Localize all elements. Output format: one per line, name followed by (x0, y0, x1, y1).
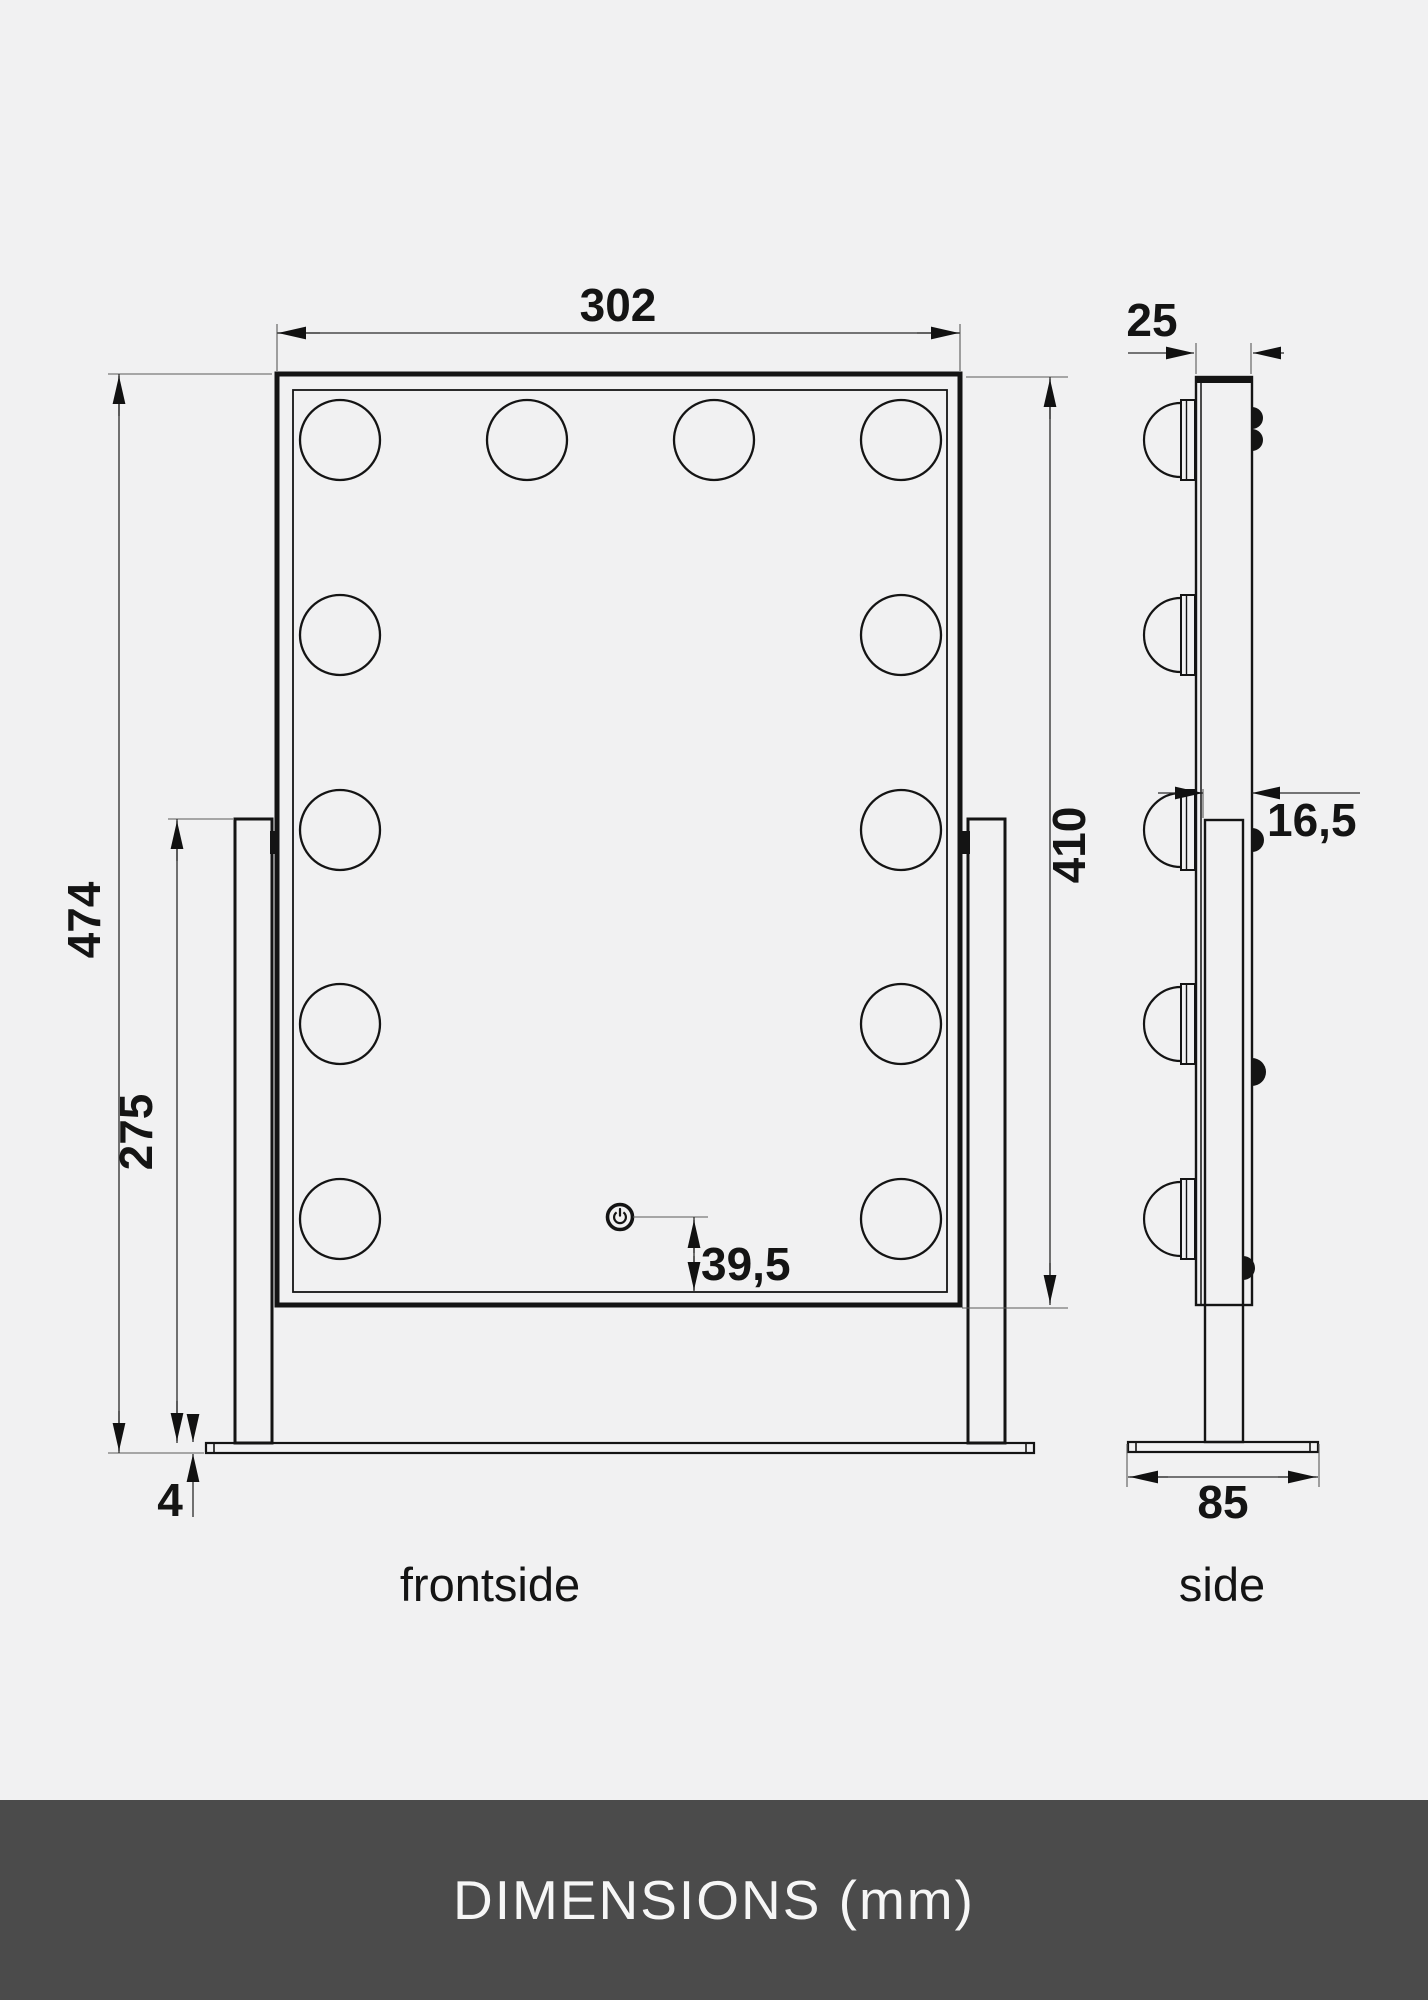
knob (1252, 828, 1264, 852)
dim-label-474: 474 (58, 881, 110, 958)
dimension-overall-height: 474 (58, 374, 272, 1453)
light-bulb (861, 1179, 941, 1259)
technical-drawing: 302 474 275 4 (0, 0, 1428, 1800)
dimension-diagram-page: 302 474 275 4 (0, 0, 1428, 2000)
light-bulb (300, 984, 380, 1064)
light-bulbs-front (300, 400, 941, 1259)
dim-label-275: 275 (110, 1094, 162, 1171)
dimension-button-offset: 39,5 (633, 1217, 791, 1292)
dimension-mirror-depth: 25 (1126, 294, 1284, 374)
banner-title: DIMENSIONS (mm) (453, 1868, 975, 1932)
stand-post-side (1205, 820, 1243, 1442)
dimension-mirror-height: 410 (962, 377, 1095, 1308)
light-bulb (861, 400, 941, 480)
light-bulb (861, 595, 941, 675)
dim-label-16-5: 16,5 (1267, 794, 1357, 846)
knob (1252, 429, 1263, 451)
base-plate-front (206, 1443, 1034, 1453)
dim-label-4: 4 (157, 1474, 183, 1526)
light-bulb (861, 984, 941, 1064)
side-view-label: side (1179, 1558, 1265, 1611)
dim-label-39-5: 39,5 (701, 1238, 791, 1290)
light-bulbs-side (1144, 400, 1195, 1259)
mirror-frame-inner (293, 390, 947, 1292)
dim-label-302: 302 (580, 279, 657, 331)
light-bulb (300, 595, 380, 675)
dimension-stand-height: 275 (110, 819, 233, 1443)
side-bulb (1144, 400, 1195, 480)
light-bulb (300, 1179, 380, 1259)
hinge-right (962, 831, 971, 854)
stand-post-right (968, 819, 1005, 1443)
light-bulb (674, 400, 754, 480)
light-bulb (487, 400, 567, 480)
dim-label-85: 85 (1197, 1476, 1248, 1528)
knob (1252, 1058, 1266, 1086)
side-bulb (1144, 790, 1195, 870)
side-bulb (1144, 595, 1195, 675)
dim-label-25: 25 (1126, 294, 1177, 346)
side-view: 25 16,5 85 side (1126, 294, 1360, 1611)
front-view-label: frontside (400, 1558, 580, 1611)
dimension-base-thickness: 4 (157, 1415, 193, 1526)
light-bulb (861, 790, 941, 870)
light-bulb (300, 790, 380, 870)
side-bulb (1144, 984, 1195, 1064)
dimensions-banner: DIMENSIONS (mm) (0, 1800, 1428, 2000)
front-view: 302 474 275 4 (58, 279, 1095, 1611)
side-bulb (1144, 1179, 1195, 1259)
light-bulb (300, 400, 380, 480)
knob (1252, 407, 1263, 429)
stand-post-left (235, 819, 272, 1443)
mirror-panel-top-bar (1196, 376, 1252, 383)
dimension-base-depth: 85 (1127, 1444, 1319, 1528)
base-plate-side (1128, 1442, 1318, 1452)
power-button-icon (608, 1205, 633, 1230)
dimension-width: 302 (277, 279, 960, 371)
back-knobs (1243, 407, 1266, 1280)
dim-label-410: 410 (1043, 807, 1095, 884)
